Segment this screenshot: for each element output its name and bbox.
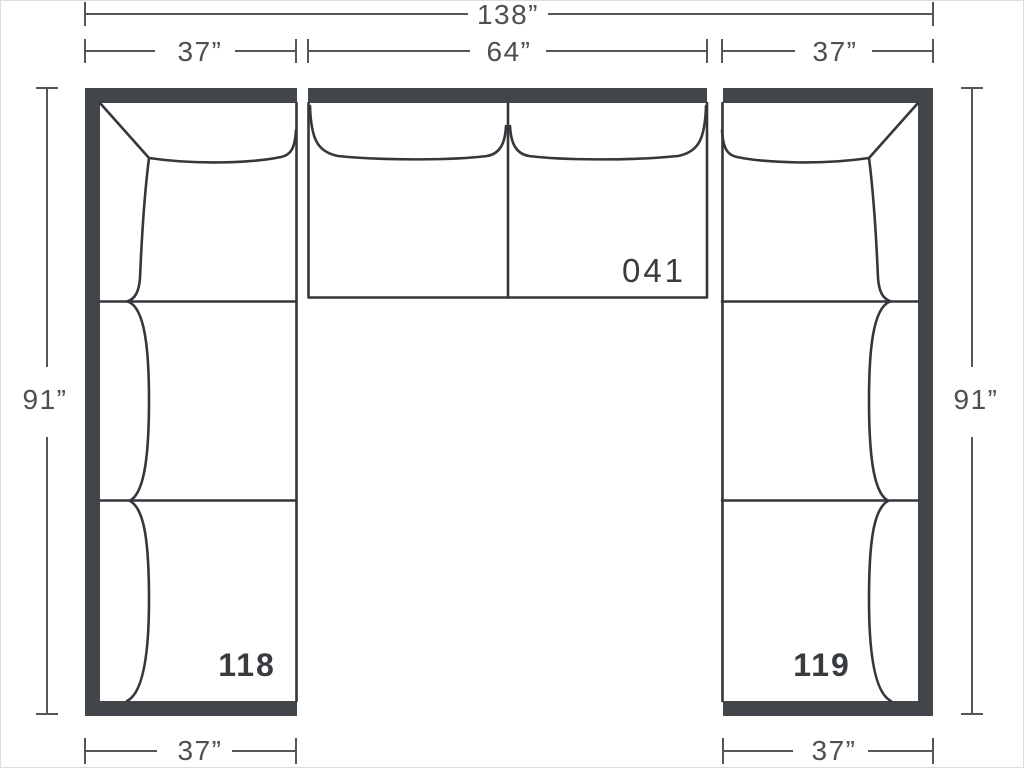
left-piece-side-back-bar	[85, 88, 100, 716]
dim-overall-width-label: 138”	[477, 0, 539, 30]
left-piece-arm-bar	[85, 701, 297, 716]
diagram-svg: 138” 37” 64” 37” 91” 91” 37”	[0, 0, 1024, 768]
piece-left-118: 118	[85, 88, 297, 716]
dim-top-center-label: 64”	[487, 36, 532, 67]
left-piece-cushion2-edge	[129, 302, 149, 500]
right-piece-arm-bar	[723, 701, 933, 716]
dim-segment-widths: 37” 64” 37”	[85, 36, 933, 67]
piece-label-119: 119	[793, 647, 851, 683]
left-piece-corner-diagonal	[100, 103, 149, 158]
dim-right-height: 91”	[954, 88, 999, 714]
left-piece-back-cushion-edge	[149, 130, 296, 162]
dim-bottom-left-width: 37”	[85, 735, 296, 766]
sectional-dimension-diagram: 138” 37” 64” 37” 91” 91” 37”	[0, 0, 1024, 768]
right-piece-cushion2-edge	[869, 302, 889, 500]
dim-bottom-right-width: 37”	[723, 735, 933, 766]
center-piece-left-back-cushion	[310, 106, 506, 159]
dim-bottom-left-label: 37”	[178, 735, 223, 766]
dim-bottom-right-label: 37”	[812, 735, 857, 766]
piece-center-041: 041	[308, 88, 707, 298]
right-piece-side-back-bar	[918, 88, 933, 716]
left-piece-cushion3-edge	[127, 501, 149, 701]
right-piece-top-back-bar	[723, 88, 933, 103]
right-piece-corner-diagonal	[869, 103, 918, 158]
piece-label-118: 118	[218, 647, 276, 683]
piece-right-119: 119	[722, 88, 933, 716]
right-piece-cushion3-edge	[869, 501, 891, 701]
dim-right-height-label: 91”	[954, 384, 999, 415]
right-piece-back-cushion-edge	[722, 130, 869, 162]
left-piece-top-back-bar	[85, 88, 297, 103]
piece-label-041: 041	[622, 252, 686, 289]
right-piece-cushion1-edge	[869, 158, 891, 302]
center-piece-back-bar	[308, 88, 707, 103]
dim-top-right-label: 37”	[813, 36, 858, 67]
center-piece-right-back-cushion	[510, 106, 706, 159]
dim-left-height: 91”	[23, 88, 68, 714]
dim-left-height-label: 91”	[23, 384, 68, 415]
left-piece-cushion1-edge	[127, 158, 149, 302]
dim-top-left-label: 37”	[178, 36, 223, 67]
dim-overall-width: 138”	[85, 0, 933, 30]
